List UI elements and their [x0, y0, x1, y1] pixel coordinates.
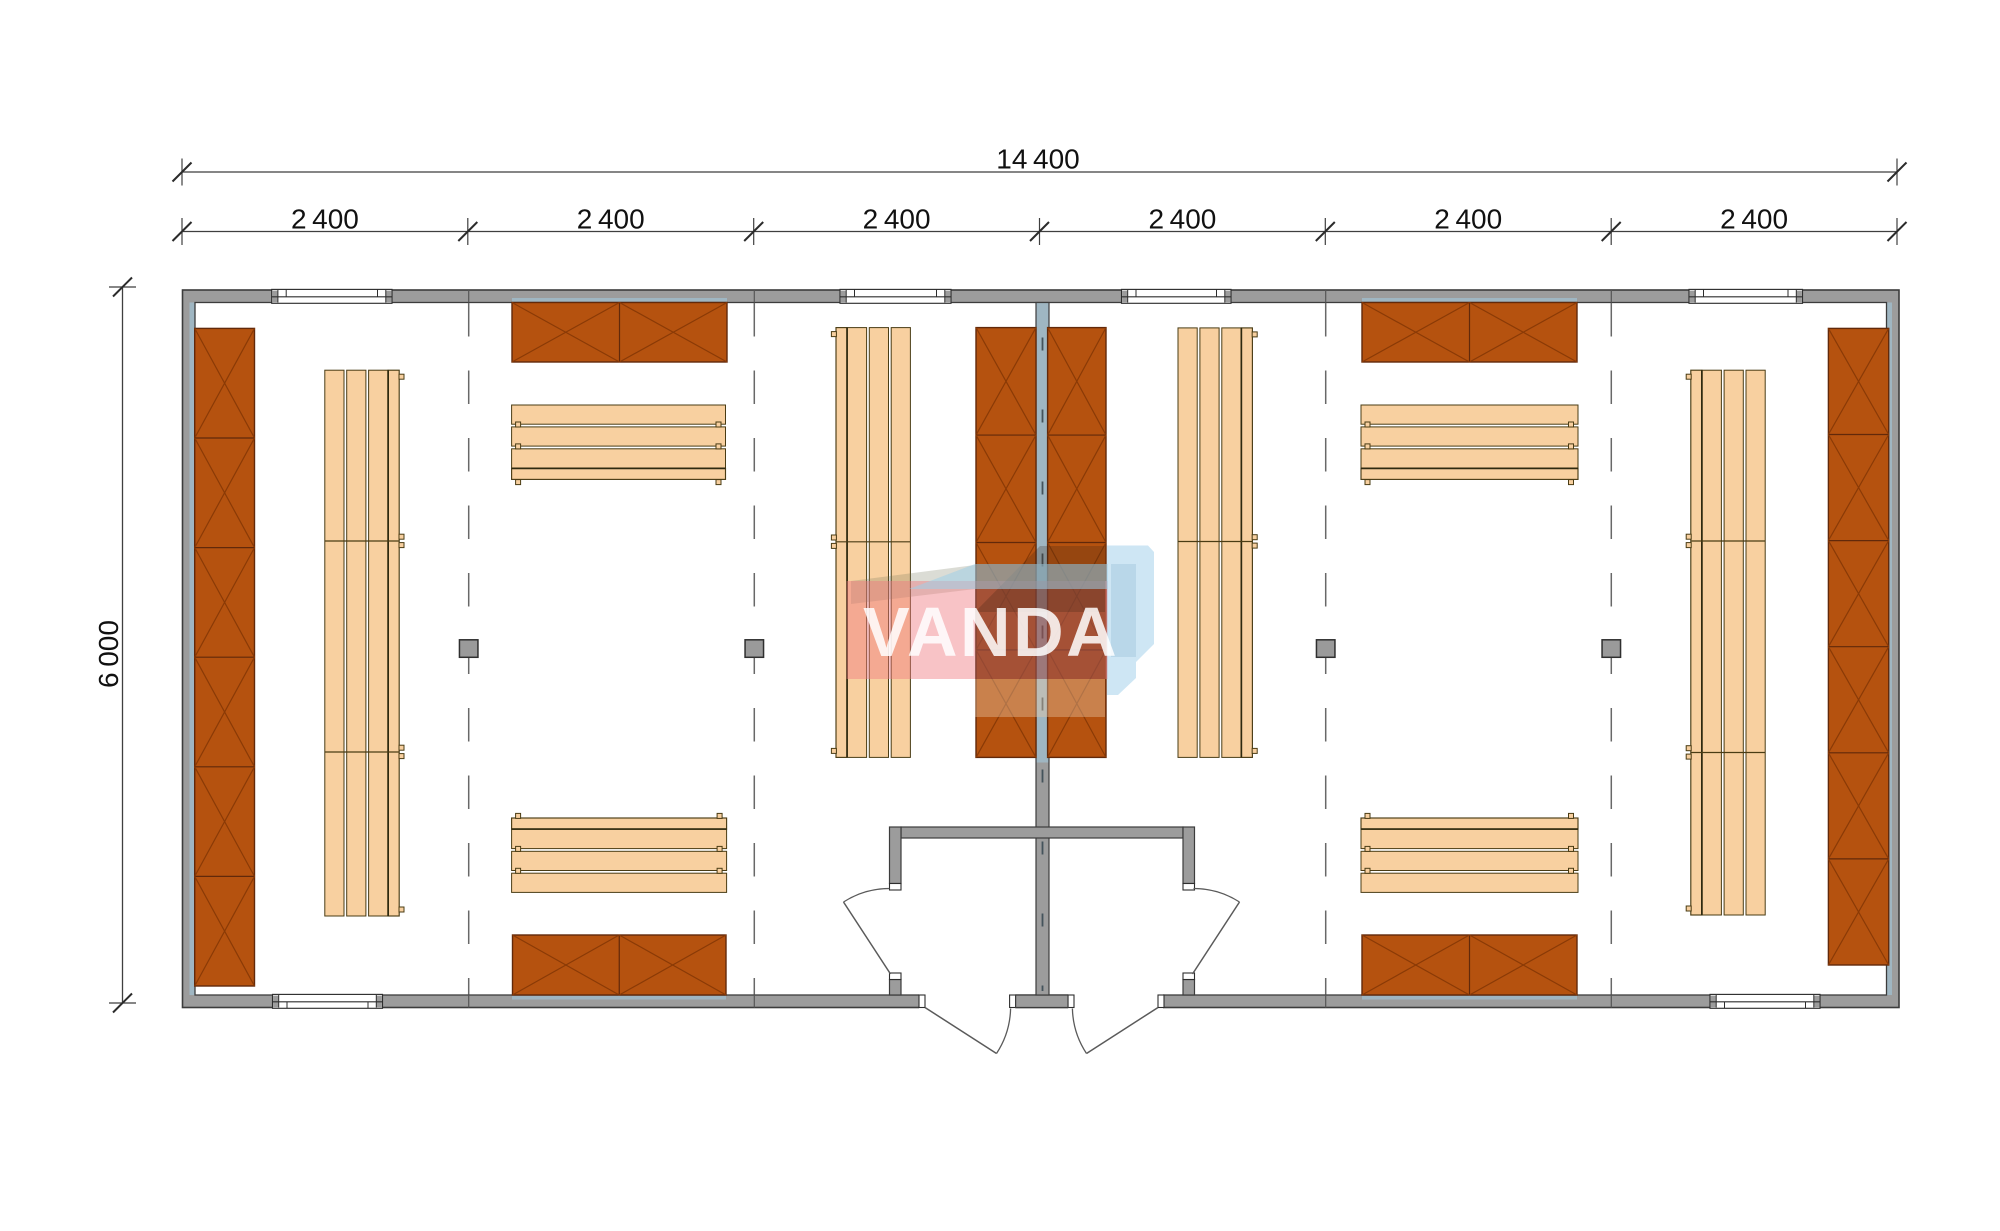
svg-text:14 400: 14 400 [996, 143, 1079, 174]
svg-text:2 400: 2 400 [1434, 204, 1502, 235]
svg-text:2 400: 2 400 [1148, 204, 1216, 235]
svg-text:2 400: 2 400 [1720, 204, 1788, 235]
svg-text:VANDA: VANDA [863, 593, 1119, 671]
svg-text:6 000: 6 000 [93, 620, 124, 688]
svg-text:2 400: 2 400 [291, 204, 359, 235]
svg-text:2 400: 2 400 [863, 204, 931, 235]
svg-text:2 400: 2 400 [577, 204, 645, 235]
